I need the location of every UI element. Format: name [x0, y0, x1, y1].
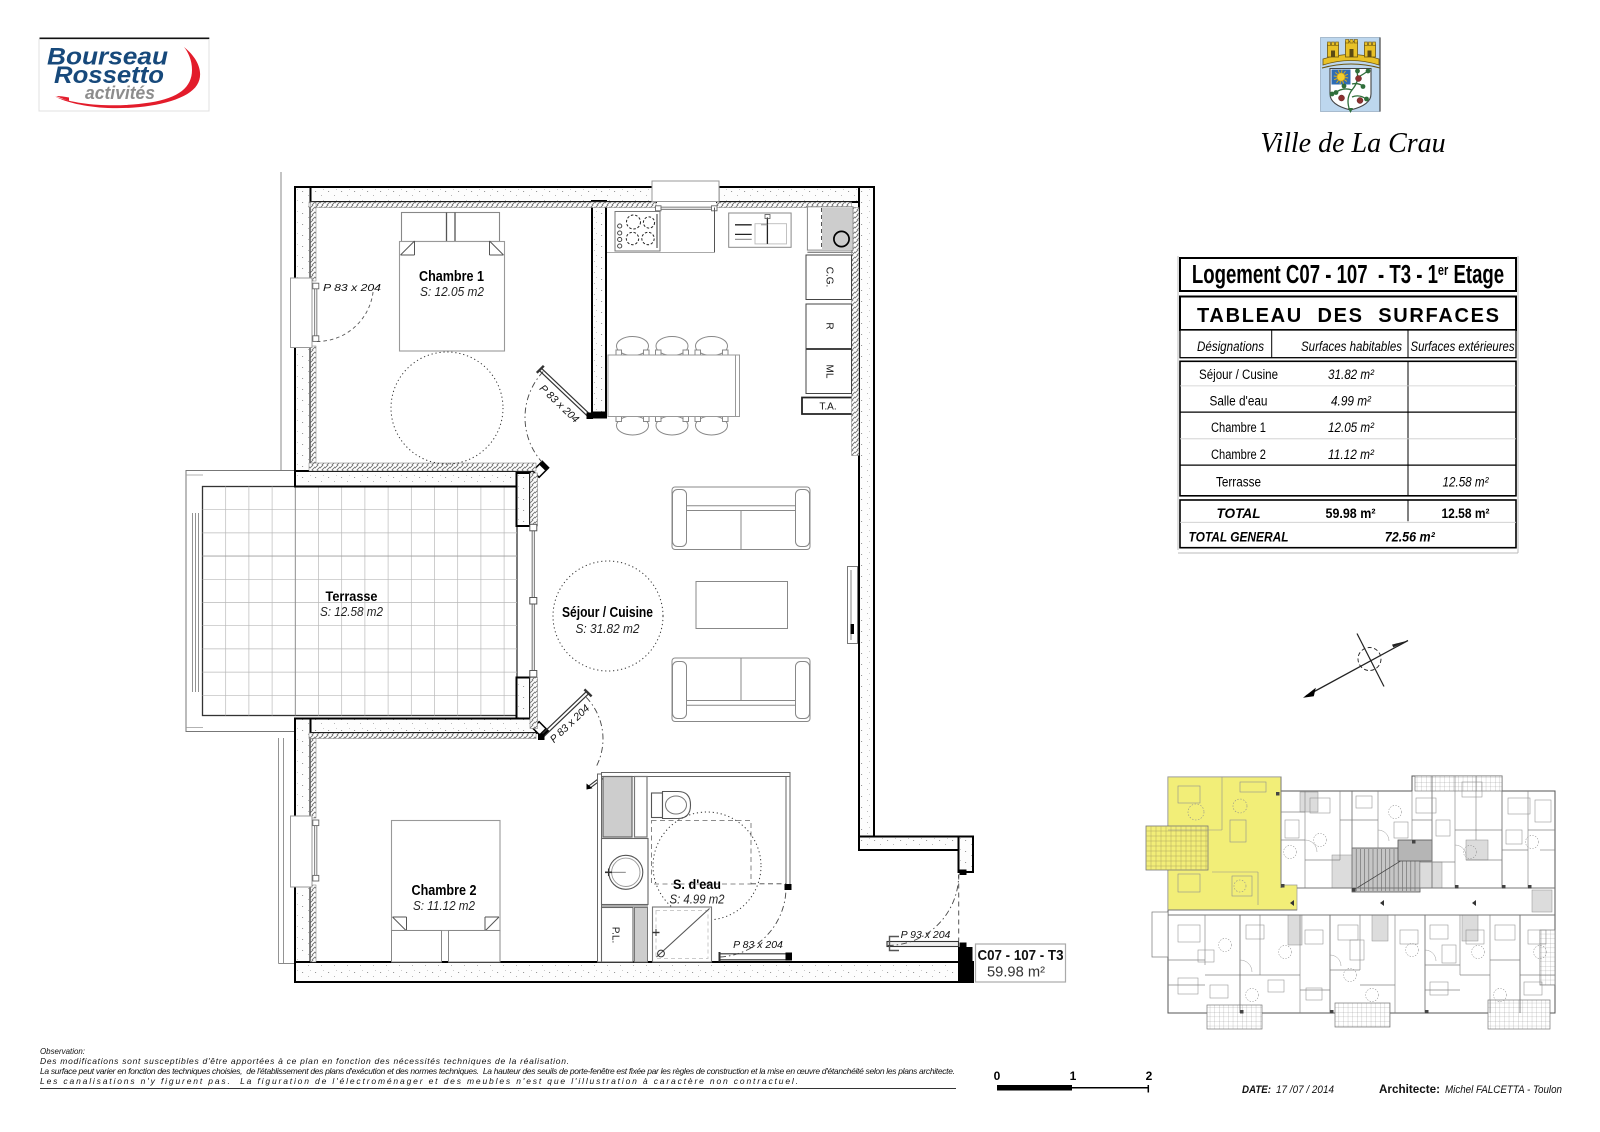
svg-text:S: 31.82 m2: S: 31.82 m2	[576, 622, 640, 636]
svg-text:La surface peut varier en fonc: La surface peut varier en fonction des t…	[40, 1066, 955, 1076]
svg-text:1: 1	[1070, 1069, 1077, 1083]
svg-text:12.58 m²: 12.58 m²	[1443, 475, 1489, 490]
svg-text:Observation:: Observation:	[40, 1046, 86, 1056]
svg-text:TABLEAU DES SURFACES: TABLEAU DES SURFACES	[1197, 305, 1499, 327]
svg-text:S: 4.99 m2: S: 4.99 m2	[670, 893, 725, 907]
svg-text:S: 12.58 m2: S: 12.58 m2	[320, 605, 383, 619]
svg-text:TOTAL GENERAL: TOTAL GENERAL	[1189, 530, 1289, 545]
svg-text:P 83 x 204: P 83 x 204	[323, 282, 381, 294]
svg-text:Chambre 2: Chambre 2	[1211, 447, 1266, 462]
svg-text:C07 - 107 - T3: C07 - 107 - T3	[978, 947, 1064, 964]
svg-text:Logement C07 - 107 - T3 - 1er: Logement C07 - 107 - T3 - 1er Etage	[1192, 260, 1504, 289]
svg-text:Chambre 1: Chambre 1	[1211, 420, 1266, 435]
svg-text:S: 11.12 m2: S: 11.12 m2	[413, 899, 475, 913]
svg-text:P 83 x 204: P 83 x 204	[733, 939, 783, 951]
svg-text:Séjour / Cuisine: Séjour / Cuisine	[562, 605, 653, 621]
svg-text:R: R	[824, 322, 835, 329]
svg-text:P.L.: P.L.	[610, 927, 621, 944]
svg-text:0: 0	[994, 1069, 1001, 1083]
svg-text:Les canalisations n'y figurent: Les canalisations n'y figurent pas. La f…	[40, 1076, 798, 1086]
svg-text:ML: ML	[824, 365, 835, 379]
svg-text:31.82 m²: 31.82 m²	[1328, 367, 1374, 382]
svg-text:Architecte:: Architecte:	[1379, 1084, 1440, 1096]
svg-text:TOTAL: TOTAL	[1217, 506, 1261, 521]
svg-text:59.98 m²: 59.98 m²	[1326, 506, 1376, 521]
svg-text:Surfaces habitables: Surfaces habitables	[1301, 339, 1402, 354]
svg-text:Des modifications sont suscept: Des modifications sont susceptibles d'êt…	[40, 1056, 569, 1066]
svg-text:Désignations: Désignations	[1197, 339, 1264, 354]
svg-text:72.56 m²: 72.56 m²	[1385, 530, 1435, 545]
svg-text:Chambre 2: Chambre 2	[412, 883, 477, 899]
svg-text:12.05 m²: 12.05 m²	[1328, 420, 1374, 435]
svg-text:DATE:: DATE:	[1242, 1084, 1271, 1096]
svg-text:12.58 m²: 12.58 m²	[1442, 506, 1490, 521]
svg-text:17 /07 / 2014: 17 /07 / 2014	[1276, 1084, 1334, 1096]
svg-text:Ville de La Crau: Ville de La Crau	[1260, 128, 1445, 159]
svg-text:S: 12.05 m2: S: 12.05 m2	[420, 285, 484, 299]
svg-text:Séjour / Cusine: Séjour / Cusine	[1199, 367, 1278, 382]
svg-text:11.12 m²: 11.12 m²	[1328, 447, 1374, 462]
svg-text:Surfaces extérieures: Surfaces extérieures	[1411, 339, 1515, 354]
svg-text:activités: activités	[85, 82, 155, 103]
svg-text:T.A.: T.A.	[819, 402, 836, 413]
svg-text:Michel FALCETTA - Toulon: Michel FALCETTA - Toulon	[1445, 1084, 1562, 1096]
svg-text:Terrasse: Terrasse	[1216, 475, 1261, 490]
svg-text:Chambre 1: Chambre 1	[419, 269, 484, 285]
svg-text:Terrasse: Terrasse	[326, 588, 378, 604]
svg-text:2: 2	[1146, 1069, 1153, 1083]
svg-text:4.99 m²: 4.99 m²	[1331, 394, 1371, 409]
svg-text:59.98 m²: 59.98 m²	[987, 965, 1045, 981]
svg-text:S. d'eau: S. d'eau	[673, 876, 721, 892]
svg-text:Salle d'eau: Salle d'eau	[1210, 394, 1268, 409]
svg-text:C.G.: C.G.	[824, 267, 835, 288]
svg-text:P 93 x 204: P 93 x 204	[901, 929, 951, 941]
